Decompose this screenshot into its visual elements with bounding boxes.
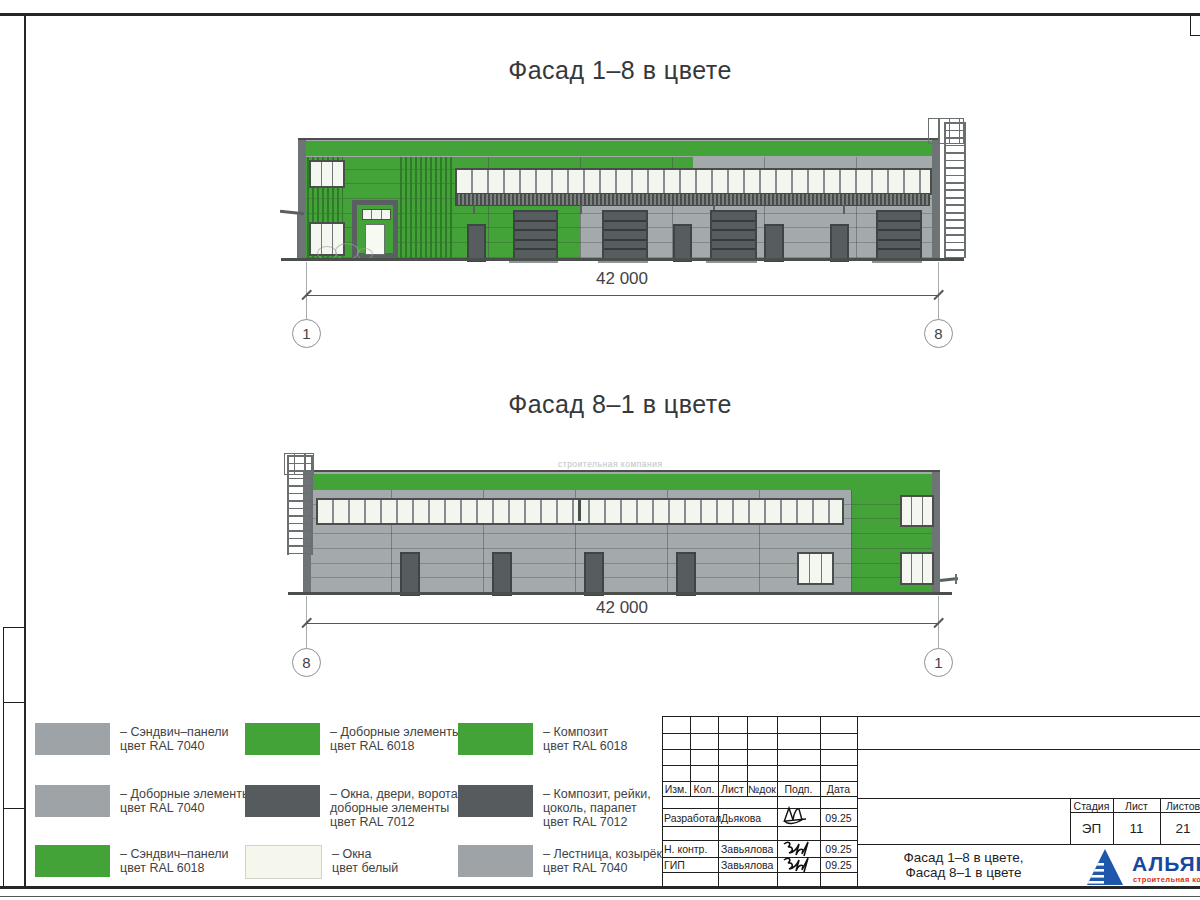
row-date: 09.25: [820, 812, 857, 824]
row-date: 09.25: [820, 859, 857, 871]
ribbon-window: [455, 168, 932, 195]
garage-door: [602, 210, 648, 262]
fire-ladder: [944, 122, 966, 258]
fire-ladder: [287, 455, 313, 555]
signature: [780, 855, 818, 873]
legend-item: – Композит, рейки,цоколь, парапетцвет RA…: [458, 785, 651, 829]
legend-swatch: [35, 723, 110, 755]
watermark: строительная компания: [558, 459, 663, 469]
legend-item: – Окна, двери, ворота,доборные элементыц…: [245, 785, 461, 829]
sheet-value: 11: [1113, 821, 1160, 836]
legend-swatch: [245, 845, 322, 879]
legend-swatch: [458, 785, 533, 817]
transom-window: [362, 209, 391, 220]
col-izm: Изм.: [662, 783, 690, 795]
legend-swatch: [458, 723, 533, 755]
signature: [780, 804, 818, 826]
stage-label: Стадия: [1070, 800, 1113, 812]
entry-door: [467, 224, 486, 262]
logo-pyramid-icon: [1085, 848, 1125, 886]
legend-item: – Сэндвич–панелицвет RAL 6018: [35, 845, 229, 877]
facade2-drawing: строительная компания: [283, 448, 973, 608]
sheets-value: 21: [1160, 821, 1200, 836]
legend-swatch: [245, 785, 320, 817]
legend-swatch: [458, 845, 533, 877]
facade2-title: Фасад 8–1 в цвете: [320, 390, 920, 419]
legend-item: – Доборные элементыцвет RAL 6018: [245, 723, 461, 755]
axis-bubble: 8: [292, 648, 321, 677]
entry-door: [764, 224, 784, 262]
row-role: ГИП: [664, 859, 685, 871]
col-kol: Кол.: [690, 783, 718, 795]
facade1-title: Фасад 1–8 в цвете: [320, 56, 920, 85]
axis-bubble: 8: [924, 319, 953, 348]
company-subtitle: строительная компания: [1133, 875, 1200, 884]
company-name: АЛЬЯНС: [1132, 852, 1200, 876]
axis-bubble: 1: [924, 648, 953, 677]
col-list: Лист: [718, 783, 747, 795]
window: [900, 495, 934, 527]
row-role: Разработал: [664, 812, 721, 824]
ground-line: [281, 258, 964, 261]
parapet-band-green: [306, 141, 932, 156]
entry-door: [673, 224, 692, 262]
parapet-band-green: [311, 474, 932, 490]
entry-door: [584, 552, 604, 596]
legend-swatch: [245, 723, 320, 755]
legend-swatch: [35, 785, 110, 817]
col-ndok: №док: [747, 783, 777, 795]
row-date: 09.25: [820, 843, 857, 855]
dimension-text: 42 000: [552, 598, 692, 618]
entry-door: [676, 552, 696, 596]
legend-item: – Окнацвет белый: [245, 845, 398, 879]
legend-item: – Доборные элементыцвет RAL 7040: [35, 785, 251, 817]
entry-door: [400, 552, 420, 596]
louver-strip: [455, 193, 930, 206]
legend-item: – Сэндвич–панелицвет RAL 7040: [35, 723, 229, 755]
sheets-label: Листов: [1160, 800, 1200, 812]
window: [797, 552, 834, 585]
row-name: Завьялова: [721, 843, 773, 855]
row-name: Дьякова: [721, 812, 761, 824]
garage-door: [876, 210, 922, 262]
legend-item: – Лестница, козырёкцвет RAL 7040: [458, 845, 662, 877]
col-data: Дата: [820, 783, 857, 795]
drawing-sheet: Фасад 1–8 в цвете: [0, 0, 1200, 900]
garage-door: [513, 210, 558, 262]
window: [900, 552, 934, 585]
stage-value: ЭП: [1070, 821, 1113, 836]
doc-title: Фасад 1–8 в цвете, Фасад 8–1 в цвете: [857, 850, 1070, 880]
entry-door: [830, 224, 849, 262]
slat-band: [400, 157, 452, 258]
garage-door: [710, 210, 757, 262]
axis-bubble: 1: [292, 319, 321, 348]
facade1-drawing: [283, 118, 973, 268]
legend-swatch: [35, 845, 110, 877]
window: [309, 160, 345, 188]
row-name: Завьялова: [721, 859, 773, 871]
ground-line: [288, 592, 952, 595]
sheet-label: Лист: [1113, 800, 1160, 812]
col-podp: Подп.: [777, 783, 820, 795]
entry-door: [492, 552, 512, 596]
legend-item: – Композитцвет RAL 6018: [458, 723, 628, 755]
row-role: Н. контр.: [664, 843, 707, 855]
dimension-text: 42 000: [552, 269, 692, 289]
